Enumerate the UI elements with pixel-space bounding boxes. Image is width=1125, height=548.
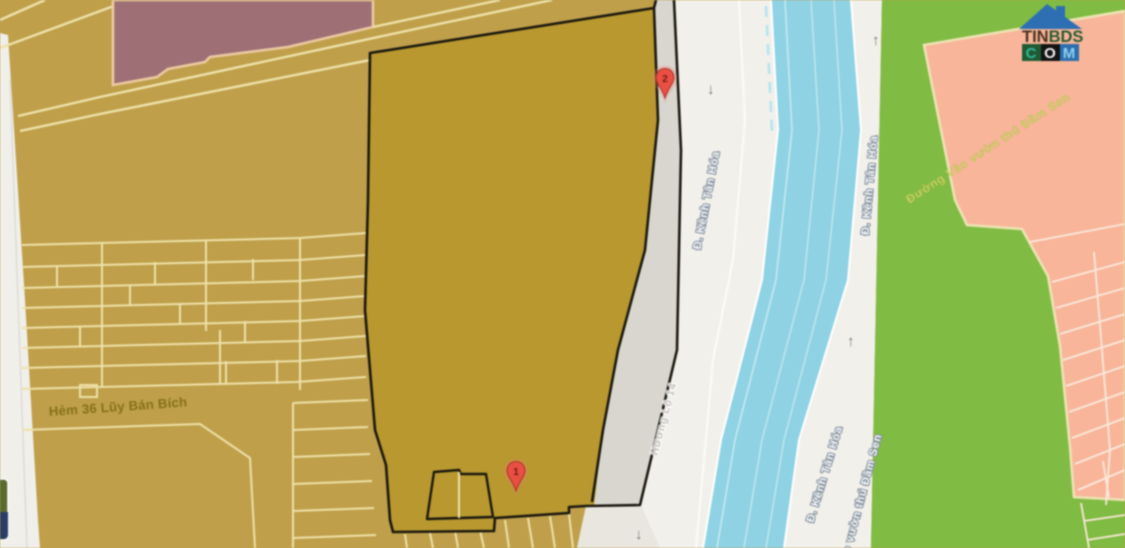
svg-text:TINBDS: TINBDS: [1022, 28, 1083, 46]
svg-text:1: 1: [513, 467, 519, 478]
svg-text:↑: ↑: [847, 333, 855, 350]
svg-text:↑: ↑: [872, 32, 880, 49]
svg-text:O: O: [1044, 45, 1056, 62]
svg-text:C: C: [1026, 45, 1037, 62]
svg-text:↓: ↓: [635, 526, 643, 543]
svg-text:M: M: [1063, 45, 1076, 62]
svg-text:↓: ↓: [707, 81, 715, 98]
svg-text:2: 2: [662, 74, 668, 85]
